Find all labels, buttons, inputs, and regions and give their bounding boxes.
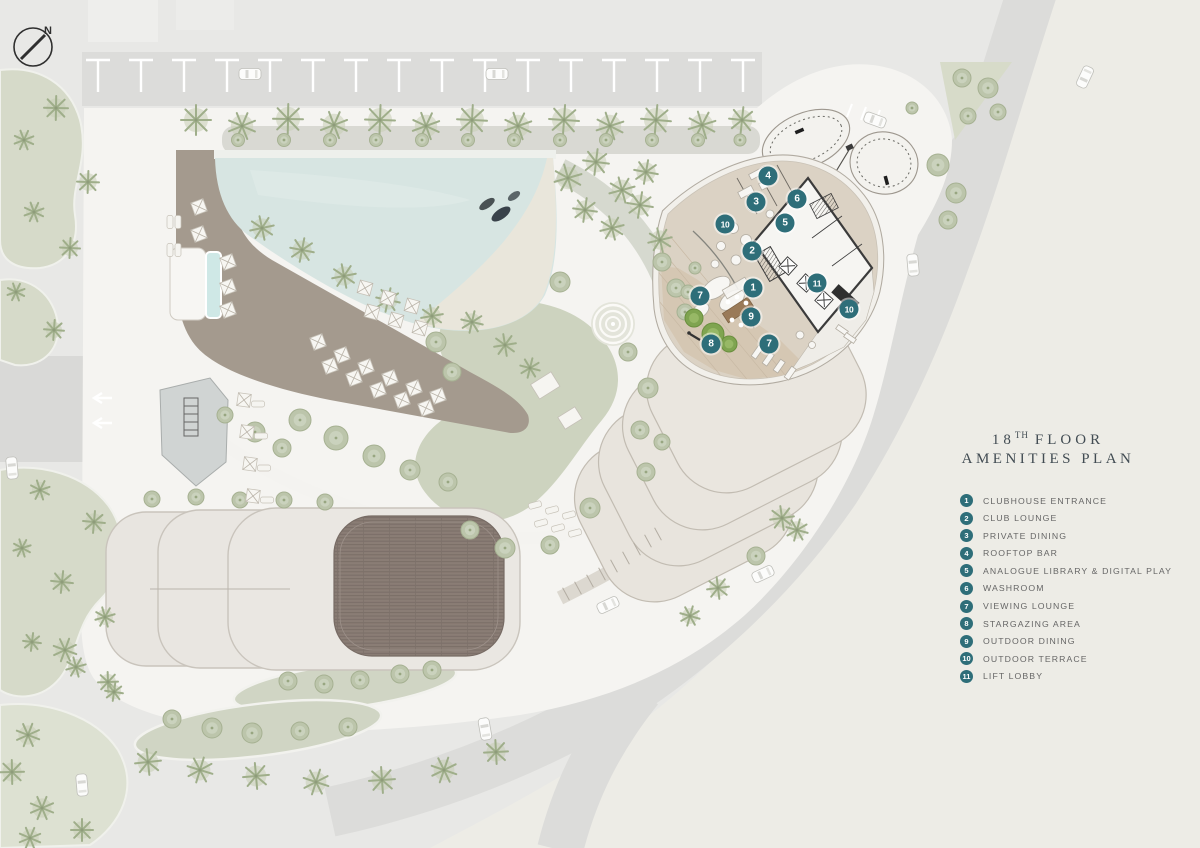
legend-item-label: OUTDOOR DINING [983, 636, 1076, 646]
legend-item-label: PRIVATE DINING [983, 531, 1067, 541]
legend-item-number-badge: 1 [960, 494, 973, 507]
legend-item-label: WASHROOM [983, 583, 1045, 593]
legend-item-label: CLUBHOUSE ENTRANCE [983, 496, 1107, 506]
plan-marker: 3 [747, 193, 766, 212]
legend-item-number-badge: 5 [960, 564, 973, 577]
floor-plan-canvas: N 1234567789101011 18THFLOOR AMENITIES P… [0, 0, 1200, 848]
legend-panel: 18THFLOOR AMENITIES PLAN 1 CLUBHOUSE ENT… [942, 430, 1194, 688]
legend-item-number-badge: 7 [960, 600, 973, 613]
legend-item-number-badge: 9 [960, 635, 973, 648]
legend-item: 4 ROOFTOP BAR [960, 547, 1194, 560]
legend-item: 5 ANALOGUE LIBRARY & DIGITAL PLAY [960, 564, 1194, 577]
plan-markers: 1234567789101011 [0, 0, 1200, 848]
legend-item-number-badge: 3 [960, 529, 973, 542]
plan-marker: 11 [808, 274, 827, 293]
plan-title: 18THFLOOR AMENITIES PLAN [942, 430, 1154, 468]
legend-item-number-badge: 2 [960, 512, 973, 525]
legend-item-label: ANALOGUE LIBRARY & DIGITAL PLAY [983, 566, 1172, 576]
plan-marker: 10 [716, 215, 735, 234]
legend-item-number-badge: 8 [960, 617, 973, 630]
legend-list: 1 CLUBHOUSE ENTRANCE 2 CLUB LOUNGE 3 PRI… [960, 494, 1194, 683]
plan-marker: 1 [744, 279, 763, 298]
legend-item: 9 OUTDOOR DINING [960, 635, 1194, 648]
plan-marker: 4 [759, 167, 778, 186]
plan-marker: 6 [788, 190, 807, 209]
plan-marker: 8 [702, 335, 721, 354]
legend-item-label: STARGAZING AREA [983, 619, 1081, 629]
legend-item: 7 VIEWING LOUNGE [960, 600, 1194, 613]
legend-item-number-badge: 11 [960, 670, 973, 683]
legend-item: 10 OUTDOOR TERRACE [960, 652, 1194, 665]
plan-marker: 10 [840, 300, 859, 319]
legend-item-number-badge: 6 [960, 582, 973, 595]
legend-item: 1 CLUBHOUSE ENTRANCE [960, 494, 1194, 507]
plan-marker: 9 [742, 308, 761, 327]
legend-item-label: CLUB LOUNGE [983, 513, 1057, 523]
legend-item: 6 WASHROOM [960, 582, 1194, 595]
plan-marker: 7 [691, 287, 710, 306]
legend-item: 11 LIFT LOBBY [960, 670, 1194, 683]
plan-title-line1: 18THFLOOR [942, 430, 1154, 449]
legend-item-label: VIEWING LOUNGE [983, 601, 1075, 611]
legend-item-label: OUTDOOR TERRACE [983, 654, 1088, 664]
legend-item: 8 STARGAZING AREA [960, 617, 1194, 630]
legend-item-label: LIFT LOBBY [983, 671, 1043, 681]
legend-item-label: ROOFTOP BAR [983, 548, 1058, 558]
plan-title-line2: AMENITIES PLAN [942, 451, 1154, 468]
legend-item: 3 PRIVATE DINING [960, 529, 1194, 542]
plan-marker: 2 [743, 242, 762, 261]
legend-item-number-badge: 10 [960, 652, 973, 665]
legend-item-number-badge: 4 [960, 547, 973, 560]
plan-marker: 5 [776, 214, 795, 233]
legend-item: 2 CLUB LOUNGE [960, 512, 1194, 525]
plan-marker: 7 [760, 335, 779, 354]
